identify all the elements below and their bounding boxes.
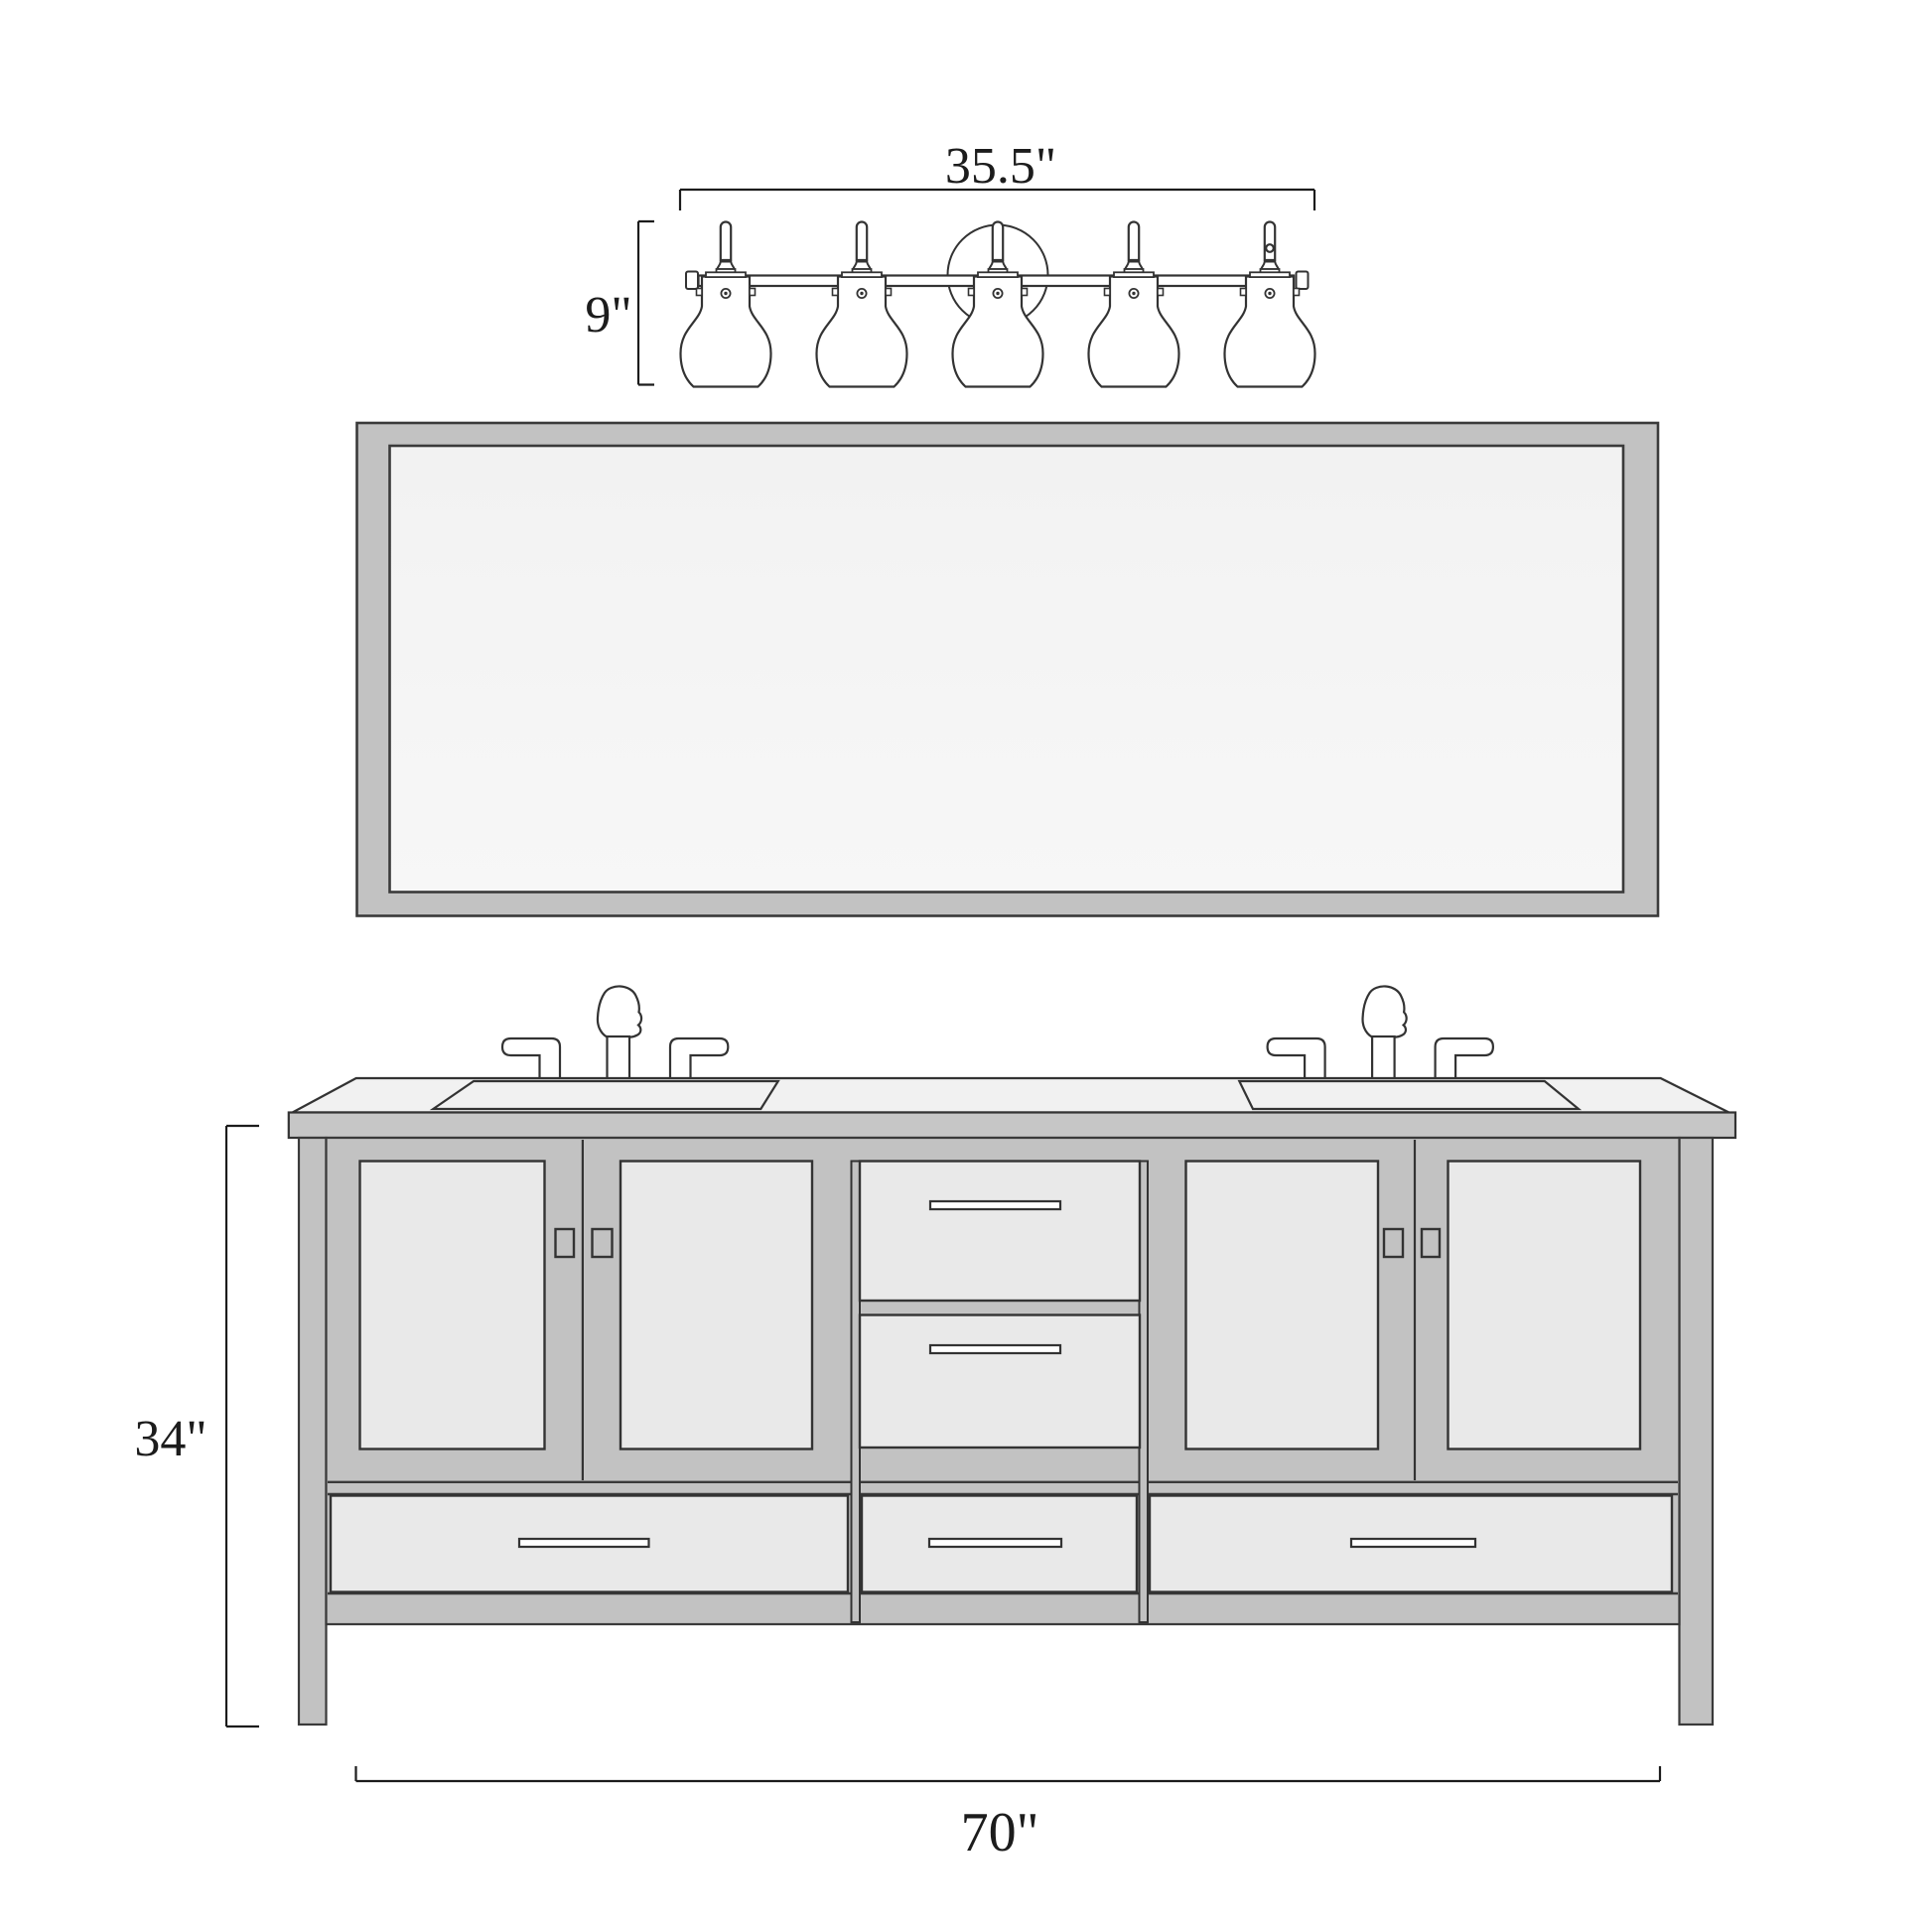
svg-text:70": 70" <box>961 1802 1039 1863</box>
svg-text:34": 34" <box>134 1411 207 1467</box>
svg-text:9": 9" <box>585 287 631 344</box>
svg-text:35.5": 35.5" <box>945 138 1056 195</box>
